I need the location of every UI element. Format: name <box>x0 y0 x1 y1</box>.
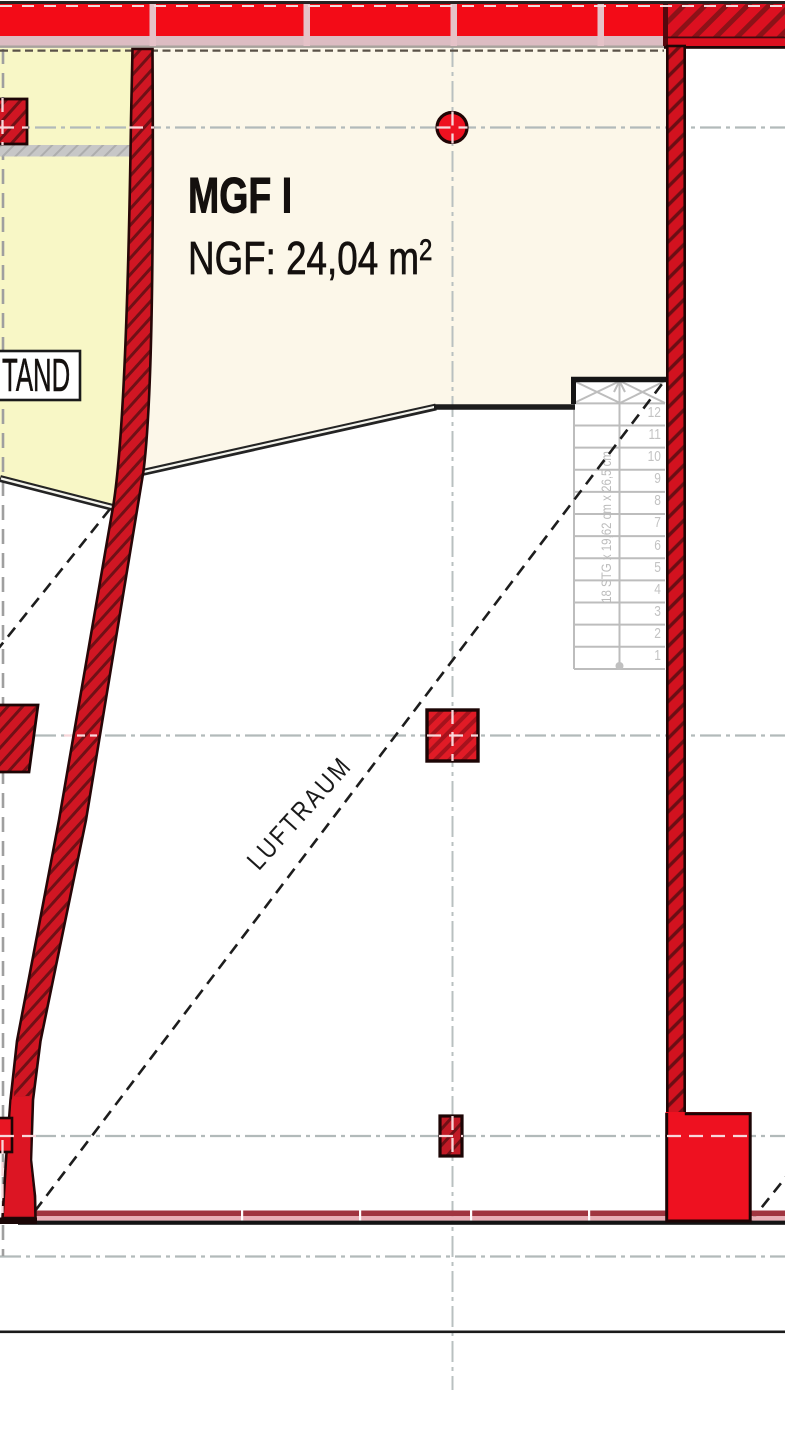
svg-text:8: 8 <box>654 492 661 509</box>
svg-text:5: 5 <box>654 559 661 576</box>
svg-text:1: 1 <box>654 647 661 664</box>
svg-text:12: 12 <box>648 404 661 421</box>
svg-text:2: 2 <box>654 625 661 642</box>
svg-text:6: 6 <box>654 537 661 554</box>
svg-text:18 STG x 19,62 cm x 26,5 cm: 18 STG x 19,62 cm x 26,5 cm <box>598 451 614 603</box>
svg-text:10: 10 <box>648 448 662 465</box>
svg-text:TAND: TAND <box>2 349 70 401</box>
svg-text:7: 7 <box>654 514 661 531</box>
svg-text:11: 11 <box>649 426 661 443</box>
svg-text:4: 4 <box>654 581 661 598</box>
svg-text:MGF I: MGF I <box>188 168 292 223</box>
svg-text:NGF: 24,04 m2: NGF: 24,04 m2 <box>188 232 432 284</box>
svg-text:3: 3 <box>654 603 661 620</box>
svg-text:9: 9 <box>654 470 661 487</box>
